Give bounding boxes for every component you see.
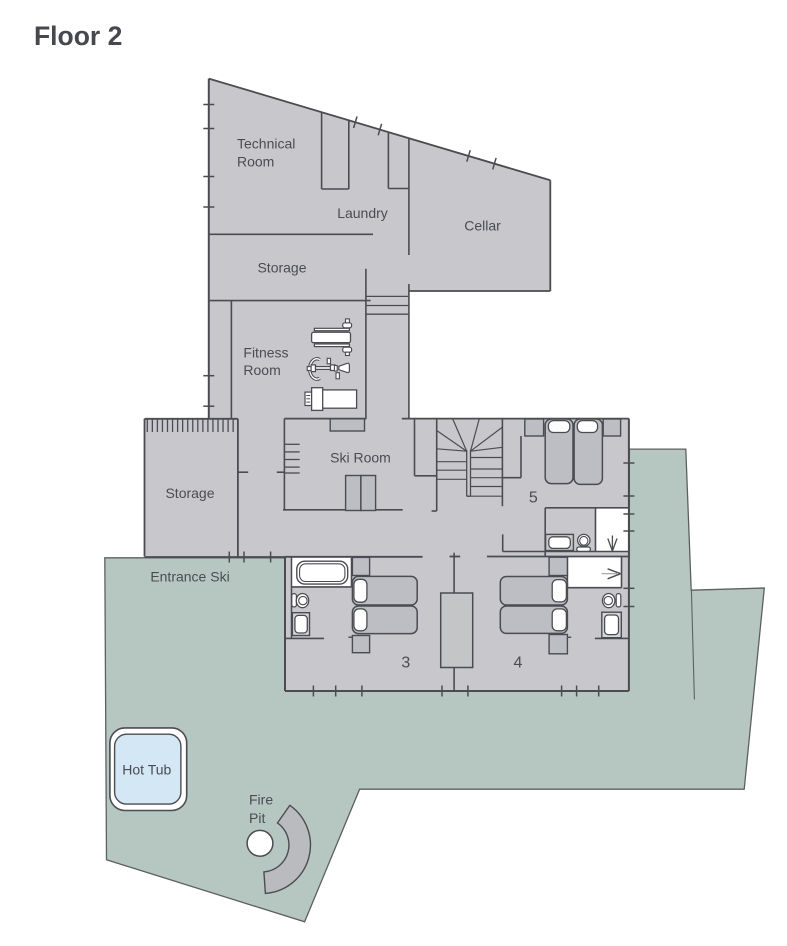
svg-text:Room: Room (237, 154, 274, 170)
svg-text:Fire: Fire (249, 792, 273, 808)
svg-text:5: 5 (529, 490, 538, 507)
svg-text:Cellar: Cellar (464, 218, 501, 234)
svg-text:Pit: Pit (249, 810, 265, 826)
svg-text:Fitness: Fitness (243, 345, 288, 361)
svg-text:Ski Room: Ski Room (330, 449, 391, 465)
svg-text:Technical: Technical (237, 136, 295, 152)
svg-text:Floor 2: Floor 2 (34, 21, 122, 51)
svg-text:3: 3 (401, 655, 410, 672)
svg-text:Storage: Storage (257, 260, 306, 276)
svg-text:Storage: Storage (165, 485, 214, 501)
svg-text:Room: Room (243, 362, 280, 378)
svg-text:4: 4 (514, 655, 523, 672)
svg-text:Entrance Ski: Entrance Ski (150, 569, 229, 585)
svg-text:Laundry: Laundry (337, 205, 388, 221)
svg-text:Hot Tub: Hot Tub (122, 762, 171, 778)
